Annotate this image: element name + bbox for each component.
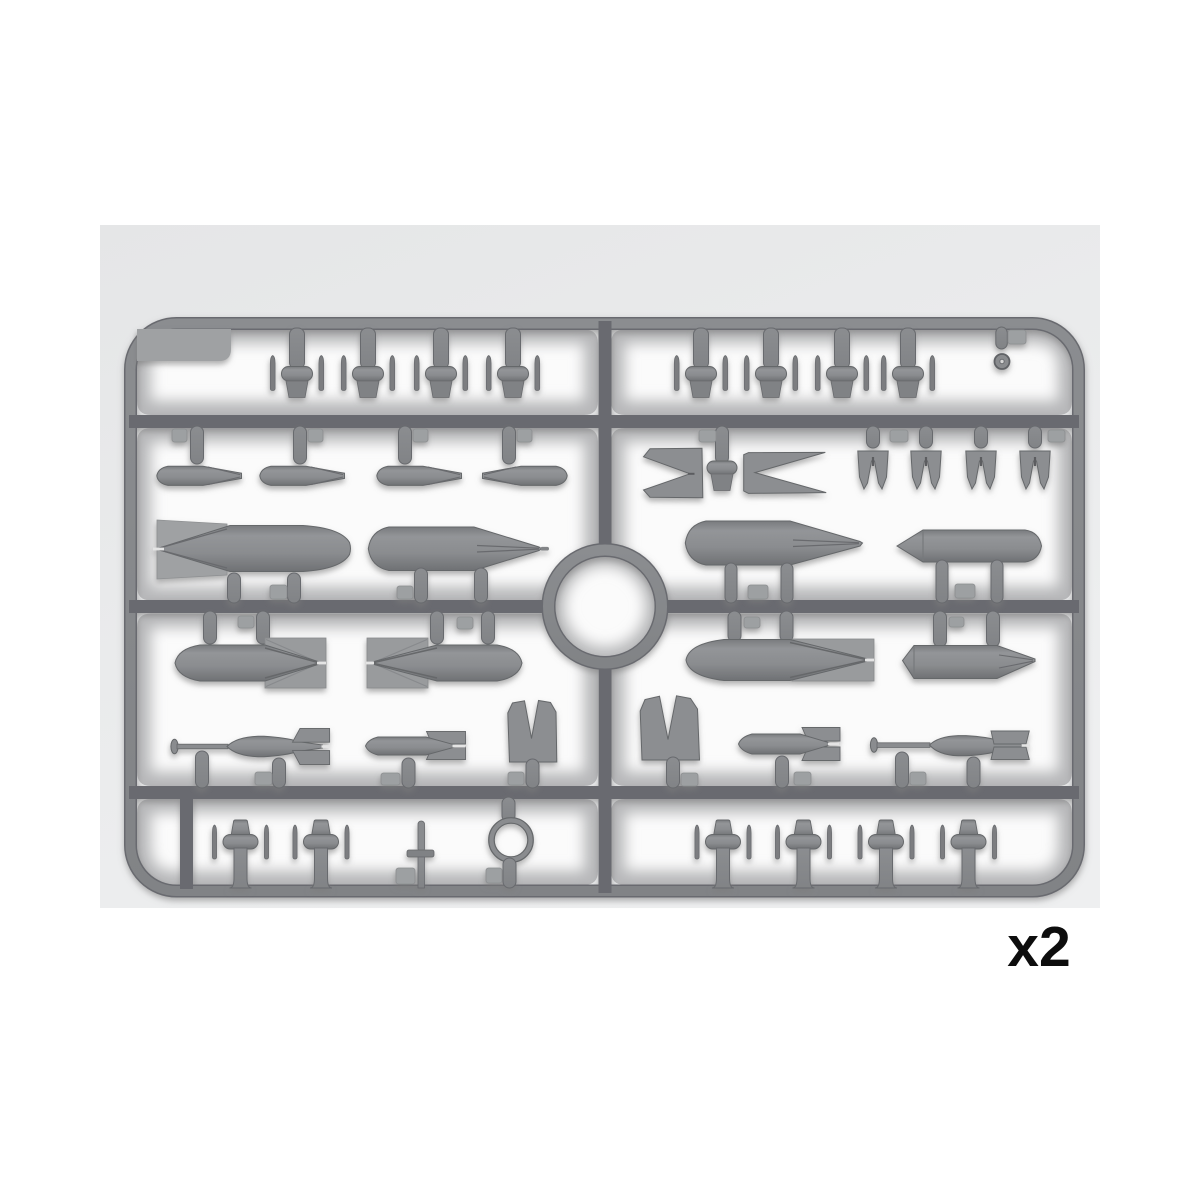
svg-text:x2: x2 bbox=[1007, 915, 1070, 979]
